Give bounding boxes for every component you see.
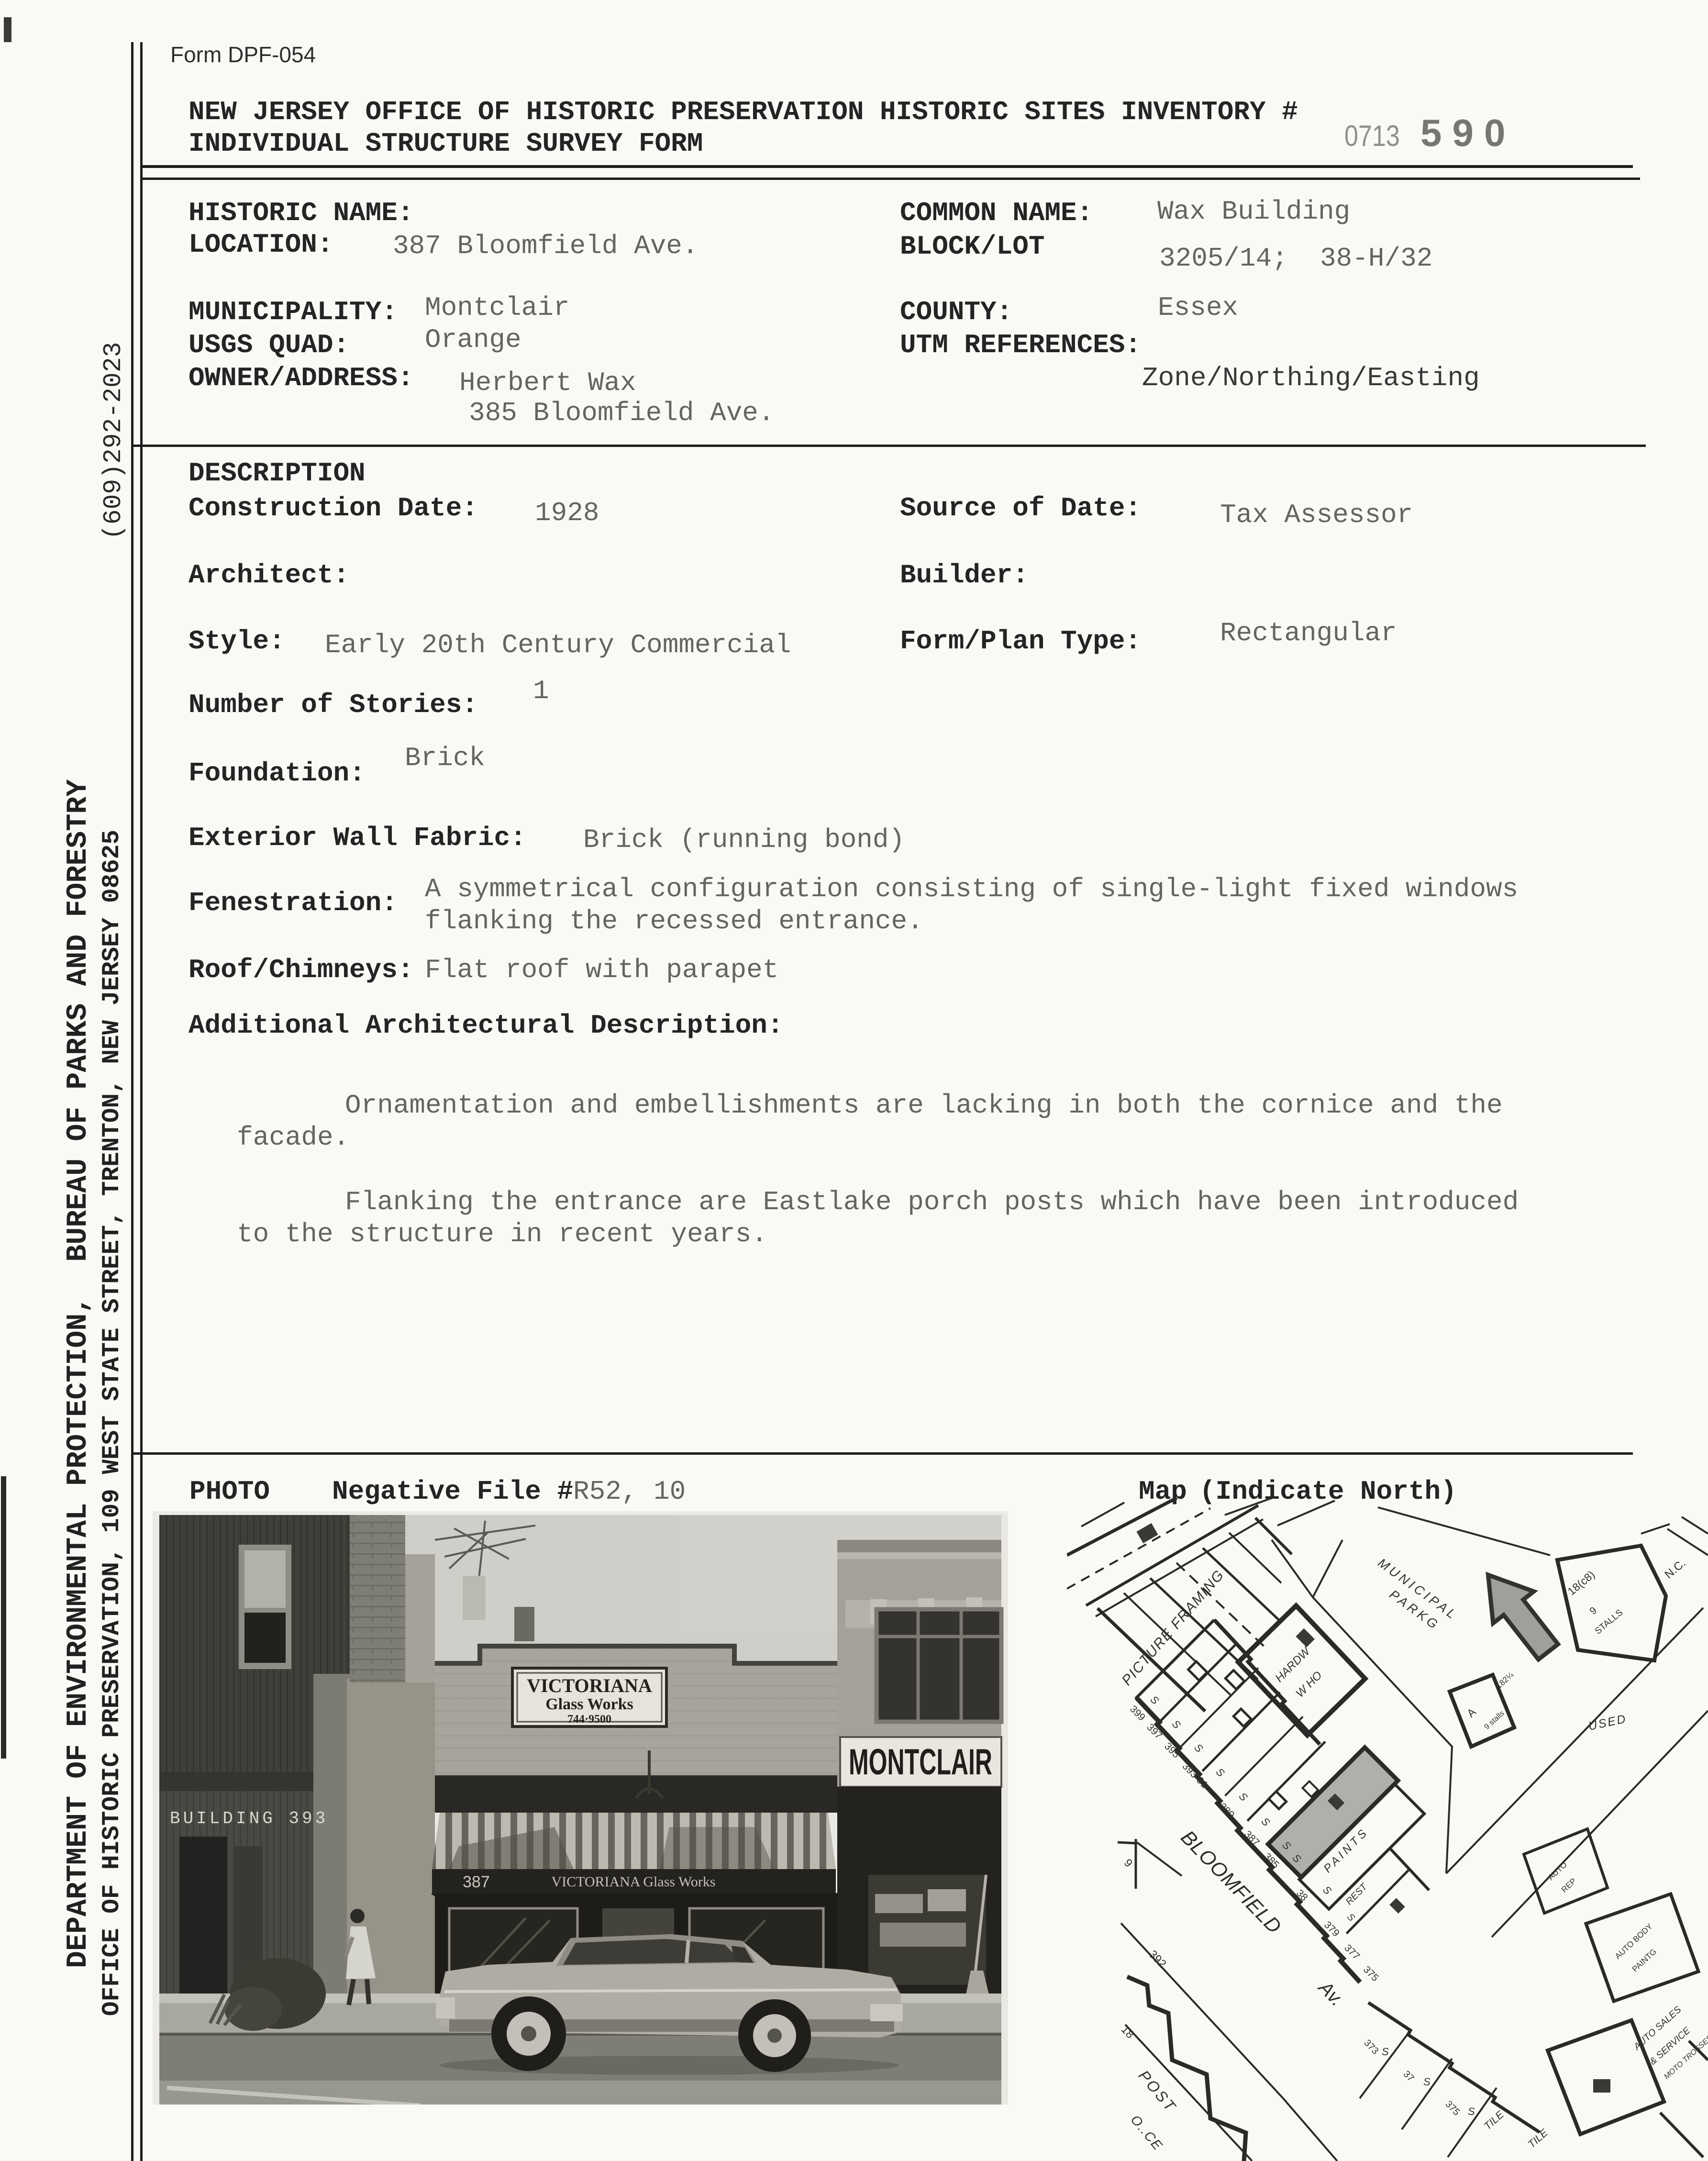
svg-text:REP: REP xyxy=(1560,1876,1578,1894)
svg-text:395: 395 xyxy=(1162,1741,1182,1760)
svg-text:O..CE: O..CE xyxy=(1128,2112,1165,2153)
svg-text:Av.: Av. xyxy=(1314,1976,1348,2010)
svg-text:STALLS: STALLS xyxy=(1593,1607,1625,1637)
svg-text:387: 387 xyxy=(463,1873,490,1891)
svg-text:387: 387 xyxy=(1242,1828,1262,1848)
svg-text:375: 375 xyxy=(1361,1964,1381,1983)
svg-text:S: S xyxy=(1237,1790,1250,1804)
svg-text:AUTO: AUTO xyxy=(1546,1860,1569,1882)
svg-text:VICTORIANA Glass Works: VICTORIANA Glass Works xyxy=(551,1874,715,1890)
svg-text:S: S xyxy=(1320,1883,1334,1897)
svg-text:S: S xyxy=(1192,1741,1205,1755)
svg-text:S: S xyxy=(1259,1815,1272,1828)
svg-text:TILE: TILE xyxy=(1482,2108,1506,2132)
svg-text:S: S xyxy=(1423,2076,1431,2088)
svg-text:MONTCLAIR: MONTCLAIR xyxy=(849,1742,992,1782)
svg-text:POST: POST xyxy=(1135,2067,1180,2116)
svg-text:37: 37 xyxy=(1401,2069,1416,2083)
svg-text:S: S xyxy=(1382,2046,1389,2058)
svg-text:S: S xyxy=(1170,1717,1183,1731)
svg-text:W HO: W HO xyxy=(1293,1669,1324,1700)
svg-text:TILE: TILE xyxy=(1526,2127,1550,2150)
svg-text:393·91: 393·91 xyxy=(1180,1760,1210,1791)
svg-text:A: A xyxy=(1464,1705,1478,1720)
svg-text:BUILDING 393: BUILDING 393 xyxy=(170,1809,328,1828)
svg-text:S: S xyxy=(1345,1912,1357,1924)
svg-text:9 stalls: 9 stalls xyxy=(1483,1709,1506,1731)
svg-text:373: 373 xyxy=(1362,2038,1380,2056)
svg-text:18: 18 xyxy=(1119,2023,1137,2041)
svg-text:S: S xyxy=(1148,1693,1161,1707)
svg-text:375: 375 xyxy=(1443,2099,1462,2117)
svg-text:PAINTG: PAINTG xyxy=(1630,1947,1658,1974)
svg-text:18(c8): 18(c8) xyxy=(1565,1568,1597,1598)
svg-text:VICTORIANA: VICTORIANA xyxy=(527,1675,652,1696)
svg-text:Glass Works: Glass Works xyxy=(545,1695,633,1713)
svg-text:182¼: 182¼ xyxy=(1494,1670,1516,1691)
svg-text:S: S xyxy=(1468,2105,1475,2117)
svg-text:9: 9 xyxy=(1587,1605,1599,1617)
svg-text:9: 9 xyxy=(1121,1856,1135,1870)
svg-text:744·9500: 744·9500 xyxy=(567,1713,611,1726)
svg-text:S: S xyxy=(1214,1766,1227,1779)
svg-text:REST: REST xyxy=(1344,1881,1370,1907)
svg-text:397: 397 xyxy=(1144,1722,1164,1741)
svg-text:N.C.: N.C. xyxy=(1663,1557,1688,1582)
svg-text:USED: USED xyxy=(1587,1712,1628,1733)
svg-text:392: 392 xyxy=(1146,1948,1169,1971)
